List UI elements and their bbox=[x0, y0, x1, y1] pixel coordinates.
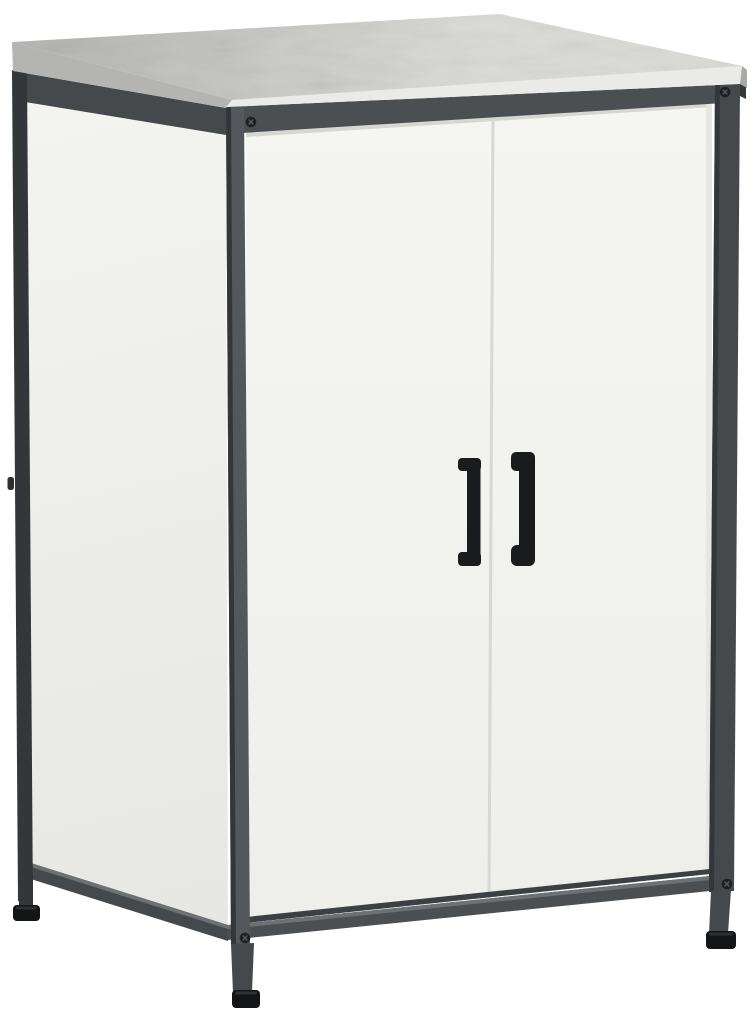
product-image bbox=[0, 0, 754, 1020]
cabinet-illustration bbox=[0, 0, 754, 1020]
front-left-leg bbox=[231, 943, 254, 993]
door-handle-left-grip bbox=[467, 458, 481, 566]
screw-top-right bbox=[720, 87, 731, 98]
screw-bottom-right bbox=[722, 879, 733, 890]
screw-bottom-left bbox=[240, 933, 251, 944]
cabinet bbox=[0, 0, 754, 1008]
left-post-hinge-nub bbox=[8, 477, 15, 490]
left-side-panel bbox=[27, 100, 228, 926]
front-right-foot-highlight bbox=[709, 933, 733, 936]
front-left-foot-highlight bbox=[235, 992, 257, 995]
door-handle-right-grip bbox=[519, 452, 535, 566]
front-right-leg bbox=[709, 890, 731, 934]
back-left-foot-highlight bbox=[16, 907, 37, 910]
back-left-leg bbox=[19, 874, 33, 907]
screw-top-left bbox=[246, 117, 257, 128]
